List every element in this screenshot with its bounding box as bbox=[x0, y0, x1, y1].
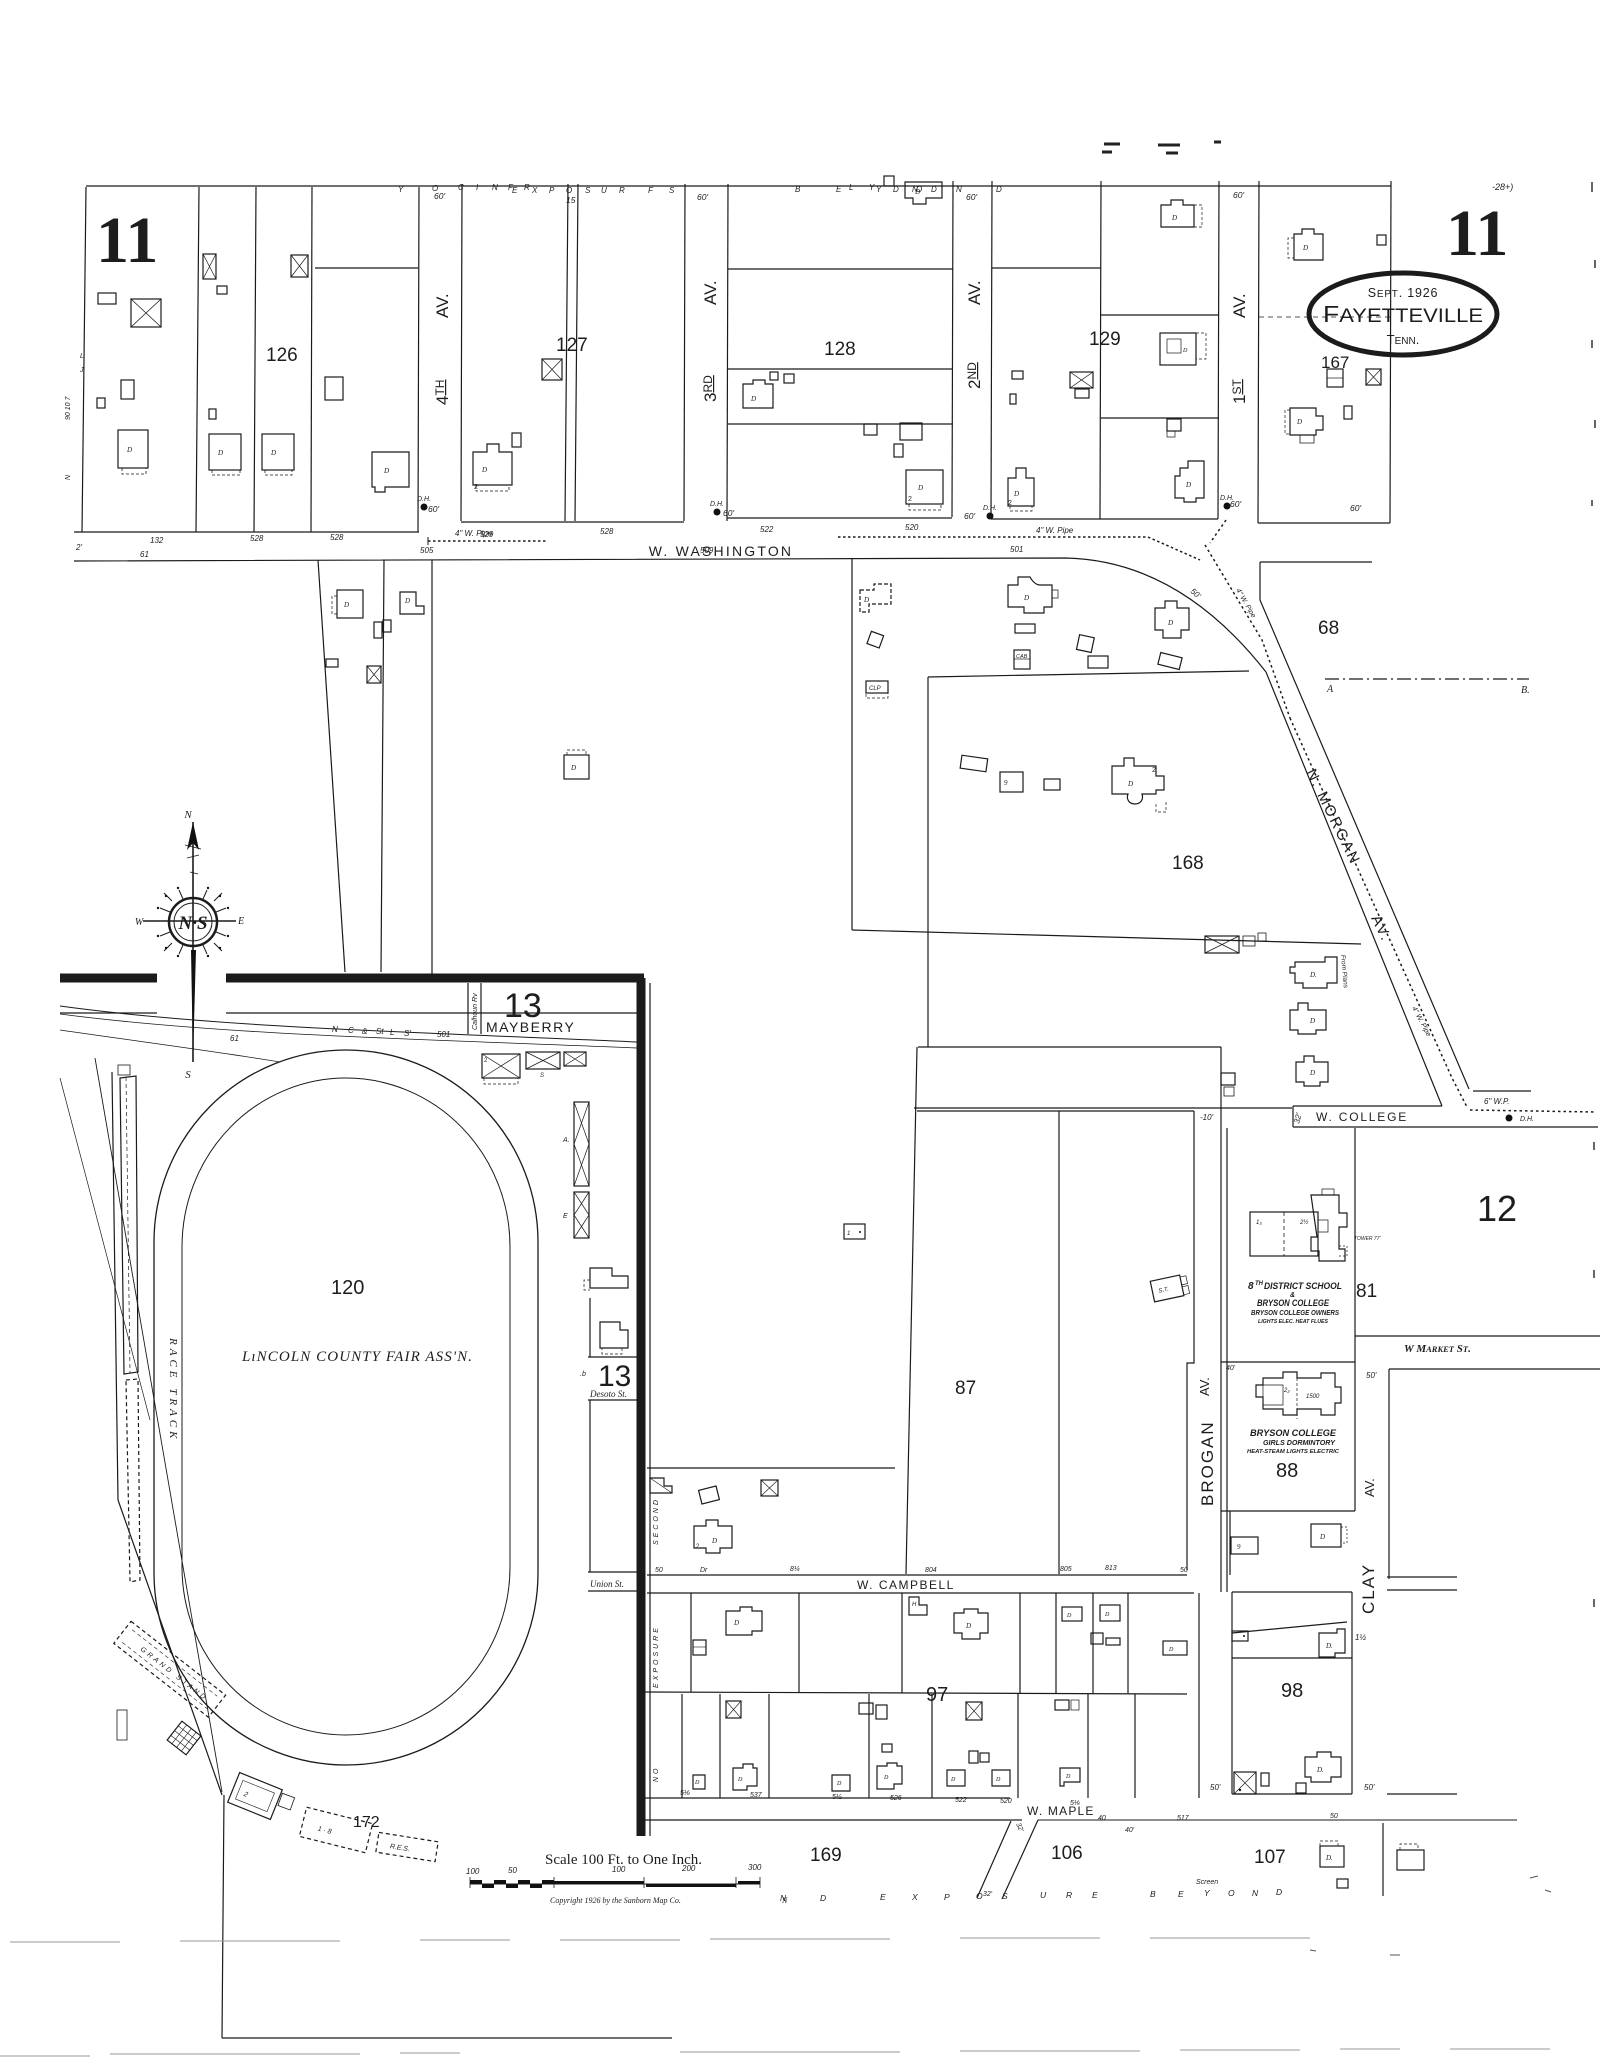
svg-text:N·S: N·S bbox=[177, 913, 207, 934]
svg-text:6" W.P.: 6" W.P. bbox=[1484, 1097, 1510, 1106]
svg-text:D: D bbox=[950, 1777, 956, 1783]
svg-text:A.: A. bbox=[562, 1137, 570, 1144]
svg-text:127: 127 bbox=[556, 335, 588, 356]
svg-text:B.: B. bbox=[1521, 685, 1530, 696]
svg-text:Y: Y bbox=[876, 185, 882, 194]
svg-text:60': 60' bbox=[723, 508, 734, 518]
svg-text:Calhoun Rv: Calhoun Rv bbox=[472, 993, 479, 1030]
svg-text:D: D bbox=[750, 395, 756, 403]
svg-text:SECOND: SECOND bbox=[653, 1497, 660, 1545]
svg-text:D.H.: D.H. bbox=[1520, 1116, 1534, 1123]
svg-text:W. CAMPBELL: W. CAMPBELL bbox=[857, 1578, 955, 1592]
svg-text:B: B bbox=[1150, 1889, 1156, 1899]
svg-text:U: U bbox=[601, 186, 607, 195]
svg-text:LIGHTS ELEC. HEAT FLUES: LIGHTS ELEC. HEAT FLUES bbox=[1258, 1319, 1328, 1325]
svg-text:5⅛: 5⅛ bbox=[680, 1790, 690, 1797]
svg-text:300: 300 bbox=[748, 1863, 762, 1872]
svg-text:D: D bbox=[836, 1781, 842, 1787]
svg-text:EXPOSURE: EXPOSURE bbox=[653, 1625, 660, 1688]
svg-text:D: D bbox=[1023, 594, 1029, 602]
svg-text:DISTRICT SCHOOL: DISTRICT SCHOOL bbox=[1264, 1281, 1342, 1291]
svg-text:60': 60' bbox=[1233, 190, 1244, 200]
svg-text:520: 520 bbox=[1000, 1798, 1012, 1805]
svg-text:60': 60' bbox=[697, 192, 708, 202]
svg-text:D: D bbox=[863, 596, 869, 604]
svg-text:D: D bbox=[737, 1777, 743, 1783]
svg-text:100: 100 bbox=[466, 1867, 480, 1876]
svg-text:TOWER 77': TOWER 77' bbox=[1354, 1236, 1381, 1242]
svg-text:A: A bbox=[1326, 684, 1334, 695]
svg-text:11: 11 bbox=[1446, 197, 1508, 270]
svg-text:R: R bbox=[619, 186, 625, 195]
svg-text:P: P bbox=[944, 1892, 950, 1902]
svg-text:172: 172 bbox=[353, 1814, 380, 1831]
svg-text:BRYSON COLLEGE OWNERS: BRYSON COLLEGE OWNERS bbox=[1251, 1310, 1339, 1317]
svg-text:CLAY: CLAY bbox=[1359, 1563, 1378, 1614]
svg-text:D: D bbox=[1167, 619, 1173, 627]
svg-text:D.: D. bbox=[1325, 1854, 1333, 1862]
svg-text:BROGAN: BROGAN bbox=[1198, 1420, 1217, 1506]
svg-text:50: 50 bbox=[1180, 1567, 1188, 1574]
svg-text:5½: 5½ bbox=[832, 1793, 842, 1801]
svg-text:GIRLS DORMINTORY: GIRLS DORMINTORY bbox=[1263, 1438, 1336, 1447]
svg-text:120: 120 bbox=[331, 1277, 364, 1299]
svg-text:D.H.: D.H. bbox=[1220, 495, 1234, 502]
svg-text:D: D bbox=[1182, 348, 1188, 354]
svg-text:E: E bbox=[1092, 1890, 1098, 1900]
svg-text:D.: D. bbox=[1309, 971, 1317, 979]
svg-text:S': S' bbox=[404, 1029, 411, 1038]
svg-text:N: N bbox=[183, 809, 192, 821]
svg-text:D: D bbox=[1302, 244, 1308, 252]
svg-text:C: C bbox=[348, 1026, 354, 1035]
svg-text:4" W. Pipe: 4" W. Pipe bbox=[455, 529, 493, 538]
svg-text:-10': -10' bbox=[1200, 1113, 1214, 1122]
svg-text:98: 98 bbox=[1281, 1680, 1303, 1702]
svg-text:AV.: AV. bbox=[433, 293, 452, 318]
svg-text:L: L bbox=[849, 183, 853, 192]
svg-text:Screen: Screen bbox=[1196, 1879, 1218, 1886]
svg-text:S: S bbox=[669, 186, 675, 195]
svg-text:HEAT-STEAM LIGHTS ELECTRIC: HEAT-STEAM LIGHTS ELECTRIC bbox=[1247, 1449, 1340, 1455]
svg-text:P: P bbox=[549, 186, 555, 195]
svg-text:D: D bbox=[995, 1777, 1001, 1783]
svg-text:S: S bbox=[1002, 1891, 1008, 1901]
svg-text:97: 97 bbox=[926, 1684, 948, 1706]
svg-text:D: D bbox=[711, 1537, 717, 1545]
svg-text:Dr: Dr bbox=[700, 1567, 708, 1574]
svg-text:88: 88 bbox=[1276, 1460, 1298, 1482]
svg-text:60': 60' bbox=[434, 191, 445, 201]
svg-text:Y: Y bbox=[398, 185, 404, 194]
svg-text:517: 517 bbox=[1177, 1815, 1190, 1822]
svg-text:87: 87 bbox=[955, 1378, 976, 1399]
svg-text:528: 528 bbox=[330, 533, 344, 542]
svg-text:D: D bbox=[1309, 1069, 1315, 1077]
svg-text:Union St.: Union St. bbox=[590, 1579, 624, 1589]
svg-text:D.: D. bbox=[1316, 1766, 1324, 1774]
svg-text:2: 2 bbox=[908, 496, 912, 503]
svg-text:S: S bbox=[185, 1069, 191, 1081]
svg-text:40': 40' bbox=[1125, 1827, 1135, 1834]
svg-text:D: D bbox=[383, 467, 389, 475]
svg-text:Copyright 1926 by the Sanborn: Copyright 1926 by the Sanborn Map Co. bbox=[550, 1896, 681, 1905]
svg-text:528: 528 bbox=[600, 527, 614, 536]
svg-text:D: D bbox=[694, 1780, 700, 1786]
svg-text:505: 505 bbox=[420, 546, 434, 555]
svg-text:L: L bbox=[80, 353, 84, 360]
svg-text:D: D bbox=[1276, 1887, 1282, 1897]
svg-text:D: D bbox=[996, 185, 1002, 194]
svg-text:50: 50 bbox=[1330, 1813, 1338, 1820]
svg-text:D: D bbox=[965, 1622, 971, 1630]
svg-text:126: 126 bbox=[266, 345, 298, 366]
svg-text:S: S bbox=[540, 1073, 544, 1079]
svg-text:2½: 2½ bbox=[1299, 1219, 1308, 1226]
svg-text:805: 805 bbox=[1060, 1566, 1072, 1573]
svg-text:AV.: AV. bbox=[1362, 1478, 1377, 1497]
svg-text:N: N bbox=[956, 185, 962, 194]
svg-text:50': 50' bbox=[1366, 1371, 1377, 1380]
svg-text:50': 50' bbox=[1364, 1783, 1375, 1792]
svg-text:LıNCOLN COUNTY FAIR ASS'N.: LıNCOLN COUNTY FAIR ASS'N. bbox=[241, 1349, 472, 1365]
svg-text:N: N bbox=[332, 1025, 338, 1034]
svg-text:11: 11 bbox=[96, 204, 158, 277]
svg-text:O: O bbox=[976, 1891, 983, 1901]
svg-text:128: 128 bbox=[824, 339, 856, 360]
svg-text:BRYSON COLLEGE: BRYSON COLLEGE bbox=[1250, 1428, 1337, 1438]
svg-text:R: R bbox=[1066, 1890, 1072, 1900]
svg-text:J: J bbox=[79, 367, 84, 374]
svg-text:D: D bbox=[820, 1893, 826, 1903]
svg-text:E: E bbox=[237, 916, 244, 927]
svg-text:D: D bbox=[343, 601, 349, 609]
svg-text:R: R bbox=[524, 183, 530, 192]
svg-text:4" W. Pipe: 4" W. Pipe bbox=[1036, 526, 1074, 535]
svg-text:E: E bbox=[836, 185, 842, 194]
svg-text:D: D bbox=[1104, 1612, 1110, 1618]
svg-text:X: X bbox=[911, 1892, 918, 1902]
svg-text:N: N bbox=[492, 183, 498, 192]
svg-text:50: 50 bbox=[508, 1866, 517, 1875]
svg-text:D: D bbox=[931, 185, 937, 194]
svg-text:NO: NO bbox=[653, 1766, 660, 1783]
svg-text:BRYSON COLLEGE: BRYSON COLLEGE bbox=[1257, 1298, 1330, 1308]
svg-text:AV.: AV. bbox=[965, 280, 984, 305]
svg-text:D: D bbox=[217, 449, 223, 457]
svg-text:S: S bbox=[585, 186, 591, 195]
svg-text:AV.: AV. bbox=[1230, 293, 1249, 318]
svg-text:12: 12 bbox=[1477, 1188, 1517, 1229]
svg-text:100: 100 bbox=[612, 1865, 626, 1874]
svg-text:E: E bbox=[512, 186, 518, 195]
svg-text:68: 68 bbox=[1318, 618, 1339, 639]
svg-text:D: D bbox=[733, 1619, 739, 1627]
svg-text:H: H bbox=[912, 1602, 917, 1608]
svg-text:528: 528 bbox=[250, 534, 264, 543]
svg-text:50: 50 bbox=[655, 1567, 663, 1574]
svg-text:D.H.: D.H. bbox=[710, 501, 724, 508]
svg-text:CAB: CAB bbox=[1016, 654, 1028, 660]
svg-text:9: 9 bbox=[1004, 779, 1008, 787]
svg-text:D: D bbox=[270, 449, 276, 457]
svg-text:2: 2 bbox=[1008, 500, 1012, 507]
svg-text:61: 61 bbox=[140, 550, 149, 559]
svg-text:520: 520 bbox=[905, 523, 919, 532]
svg-text:D: D bbox=[1319, 1533, 1325, 1541]
svg-text:8: 8 bbox=[1248, 1281, 1254, 1292]
svg-text:N: N bbox=[781, 1896, 788, 1905]
svg-text:U: U bbox=[1040, 1890, 1047, 1900]
svg-text:200: 200 bbox=[681, 1864, 696, 1873]
svg-text:D: D bbox=[570, 764, 576, 772]
svg-text:2: 2 bbox=[474, 484, 478, 491]
svg-text:60': 60' bbox=[428, 504, 439, 514]
svg-text:-28+): -28+) bbox=[1492, 182, 1513, 192]
svg-text:61: 61 bbox=[230, 1034, 239, 1043]
svg-text:D: D bbox=[1185, 481, 1191, 489]
svg-text:2₂: 2₂ bbox=[1283, 1388, 1290, 1394]
svg-text:60': 60' bbox=[1350, 503, 1361, 513]
svg-text:D: D bbox=[126, 446, 132, 454]
svg-text:D: D bbox=[1127, 780, 1133, 788]
svg-text:AV.: AV. bbox=[701, 280, 720, 305]
svg-text:D: D bbox=[1296, 418, 1302, 426]
svg-text:501: 501 bbox=[1010, 545, 1023, 554]
svg-text:60': 60' bbox=[966, 192, 977, 202]
svg-text:9: 9 bbox=[1237, 1543, 1241, 1551]
svg-text:X: X bbox=[531, 186, 538, 195]
svg-text:D: D bbox=[914, 188, 920, 196]
svg-text:MAYBERRY: MAYBERRY bbox=[486, 1019, 575, 1035]
svg-text:O: O bbox=[566, 186, 572, 195]
svg-text:169: 169 bbox=[810, 1845, 842, 1866]
svg-text:B: B bbox=[795, 185, 801, 194]
svg-text:1500: 1500 bbox=[1306, 1394, 1320, 1400]
svg-text:SEPT. 1926: SEPT. 1926 bbox=[1368, 286, 1439, 300]
svg-text:&: & bbox=[362, 1027, 367, 1036]
svg-text:813: 813 bbox=[1105, 1565, 1117, 1572]
svg-text:D: D bbox=[1066, 1613, 1072, 1619]
svg-text:AV.: AV. bbox=[1197, 1377, 1212, 1396]
svg-text:1: 1 bbox=[847, 1231, 850, 1237]
svg-text:8¼: 8¼ bbox=[790, 1566, 800, 1573]
svg-text:107: 107 bbox=[1254, 1847, 1286, 1868]
svg-text:D: D bbox=[1171, 214, 1177, 222]
svg-text:D.H.: D.H. bbox=[983, 505, 997, 512]
svg-text:Desoto St.: Desoto St. bbox=[589, 1389, 627, 1399]
svg-text:D: D bbox=[917, 484, 923, 492]
svg-text:D: D bbox=[1309, 1017, 1315, 1025]
svg-text:D.H.: D.H. bbox=[417, 496, 431, 503]
svg-text:522: 522 bbox=[760, 525, 774, 534]
svg-text:2: 2 bbox=[1152, 767, 1156, 774]
svg-text:CLP: CLP bbox=[869, 686, 881, 692]
svg-text:N: N bbox=[1252, 1888, 1259, 1898]
svg-text:90 10 7: 90 10 7 bbox=[65, 396, 72, 420]
svg-text:D: D bbox=[481, 466, 487, 474]
svg-text:804: 804 bbox=[925, 1567, 937, 1574]
svg-text:32': 32' bbox=[983, 1891, 993, 1898]
svg-text:D: D bbox=[883, 1775, 889, 1781]
svg-text:50': 50' bbox=[1210, 1783, 1221, 1792]
svg-text:Y: Y bbox=[869, 183, 875, 192]
svg-text:C: C bbox=[458, 183, 464, 192]
svg-text:1₃: 1₃ bbox=[1256, 1220, 1262, 1226]
svg-text:132: 132 bbox=[150, 536, 164, 545]
svg-text:D: D bbox=[404, 597, 410, 605]
svg-text:60': 60' bbox=[964, 511, 975, 521]
svg-text:509: 509 bbox=[700, 546, 714, 555]
svg-text:D.: D. bbox=[1325, 1642, 1333, 1650]
svg-text:168: 168 bbox=[1172, 853, 1204, 874]
svg-text:D: D bbox=[1065, 1774, 1071, 1780]
svg-text:129: 129 bbox=[1089, 329, 1121, 350]
svg-text:2': 2' bbox=[75, 543, 82, 552]
svg-text:81: 81 bbox=[1356, 1281, 1377, 1302]
svg-text:St: St bbox=[376, 1027, 384, 1036]
svg-text:40: 40 bbox=[1098, 1815, 1106, 1822]
svg-text:1½: 1½ bbox=[1355, 1633, 1366, 1642]
svg-text:D: D bbox=[1168, 1647, 1174, 1653]
svg-text:RACE TRACK: RACE TRACK bbox=[167, 1337, 179, 1442]
svg-text:L: L bbox=[390, 1028, 394, 1037]
svg-text:E: E bbox=[880, 1892, 886, 1902]
svg-text:TH: TH bbox=[1255, 1281, 1264, 1287]
svg-text:W MARKET ST.: W MARKET ST. bbox=[1404, 1343, 1471, 1355]
svg-text:W. COLLEGE: W. COLLEGE bbox=[1316, 1110, 1408, 1124]
svg-text:.b: .b bbox=[580, 1371, 586, 1378]
svg-text:106: 106 bbox=[1051, 1843, 1083, 1864]
svg-text:W. MAPLE: W. MAPLE bbox=[1027, 1804, 1095, 1818]
svg-text:D: D bbox=[1013, 490, 1019, 498]
svg-text:W. WASHINGTON: W. WASHINGTON bbox=[649, 543, 794, 559]
svg-text:E: E bbox=[563, 1213, 568, 1220]
svg-text:O: O bbox=[1228, 1888, 1235, 1898]
svg-text:E: E bbox=[1178, 1889, 1184, 1899]
